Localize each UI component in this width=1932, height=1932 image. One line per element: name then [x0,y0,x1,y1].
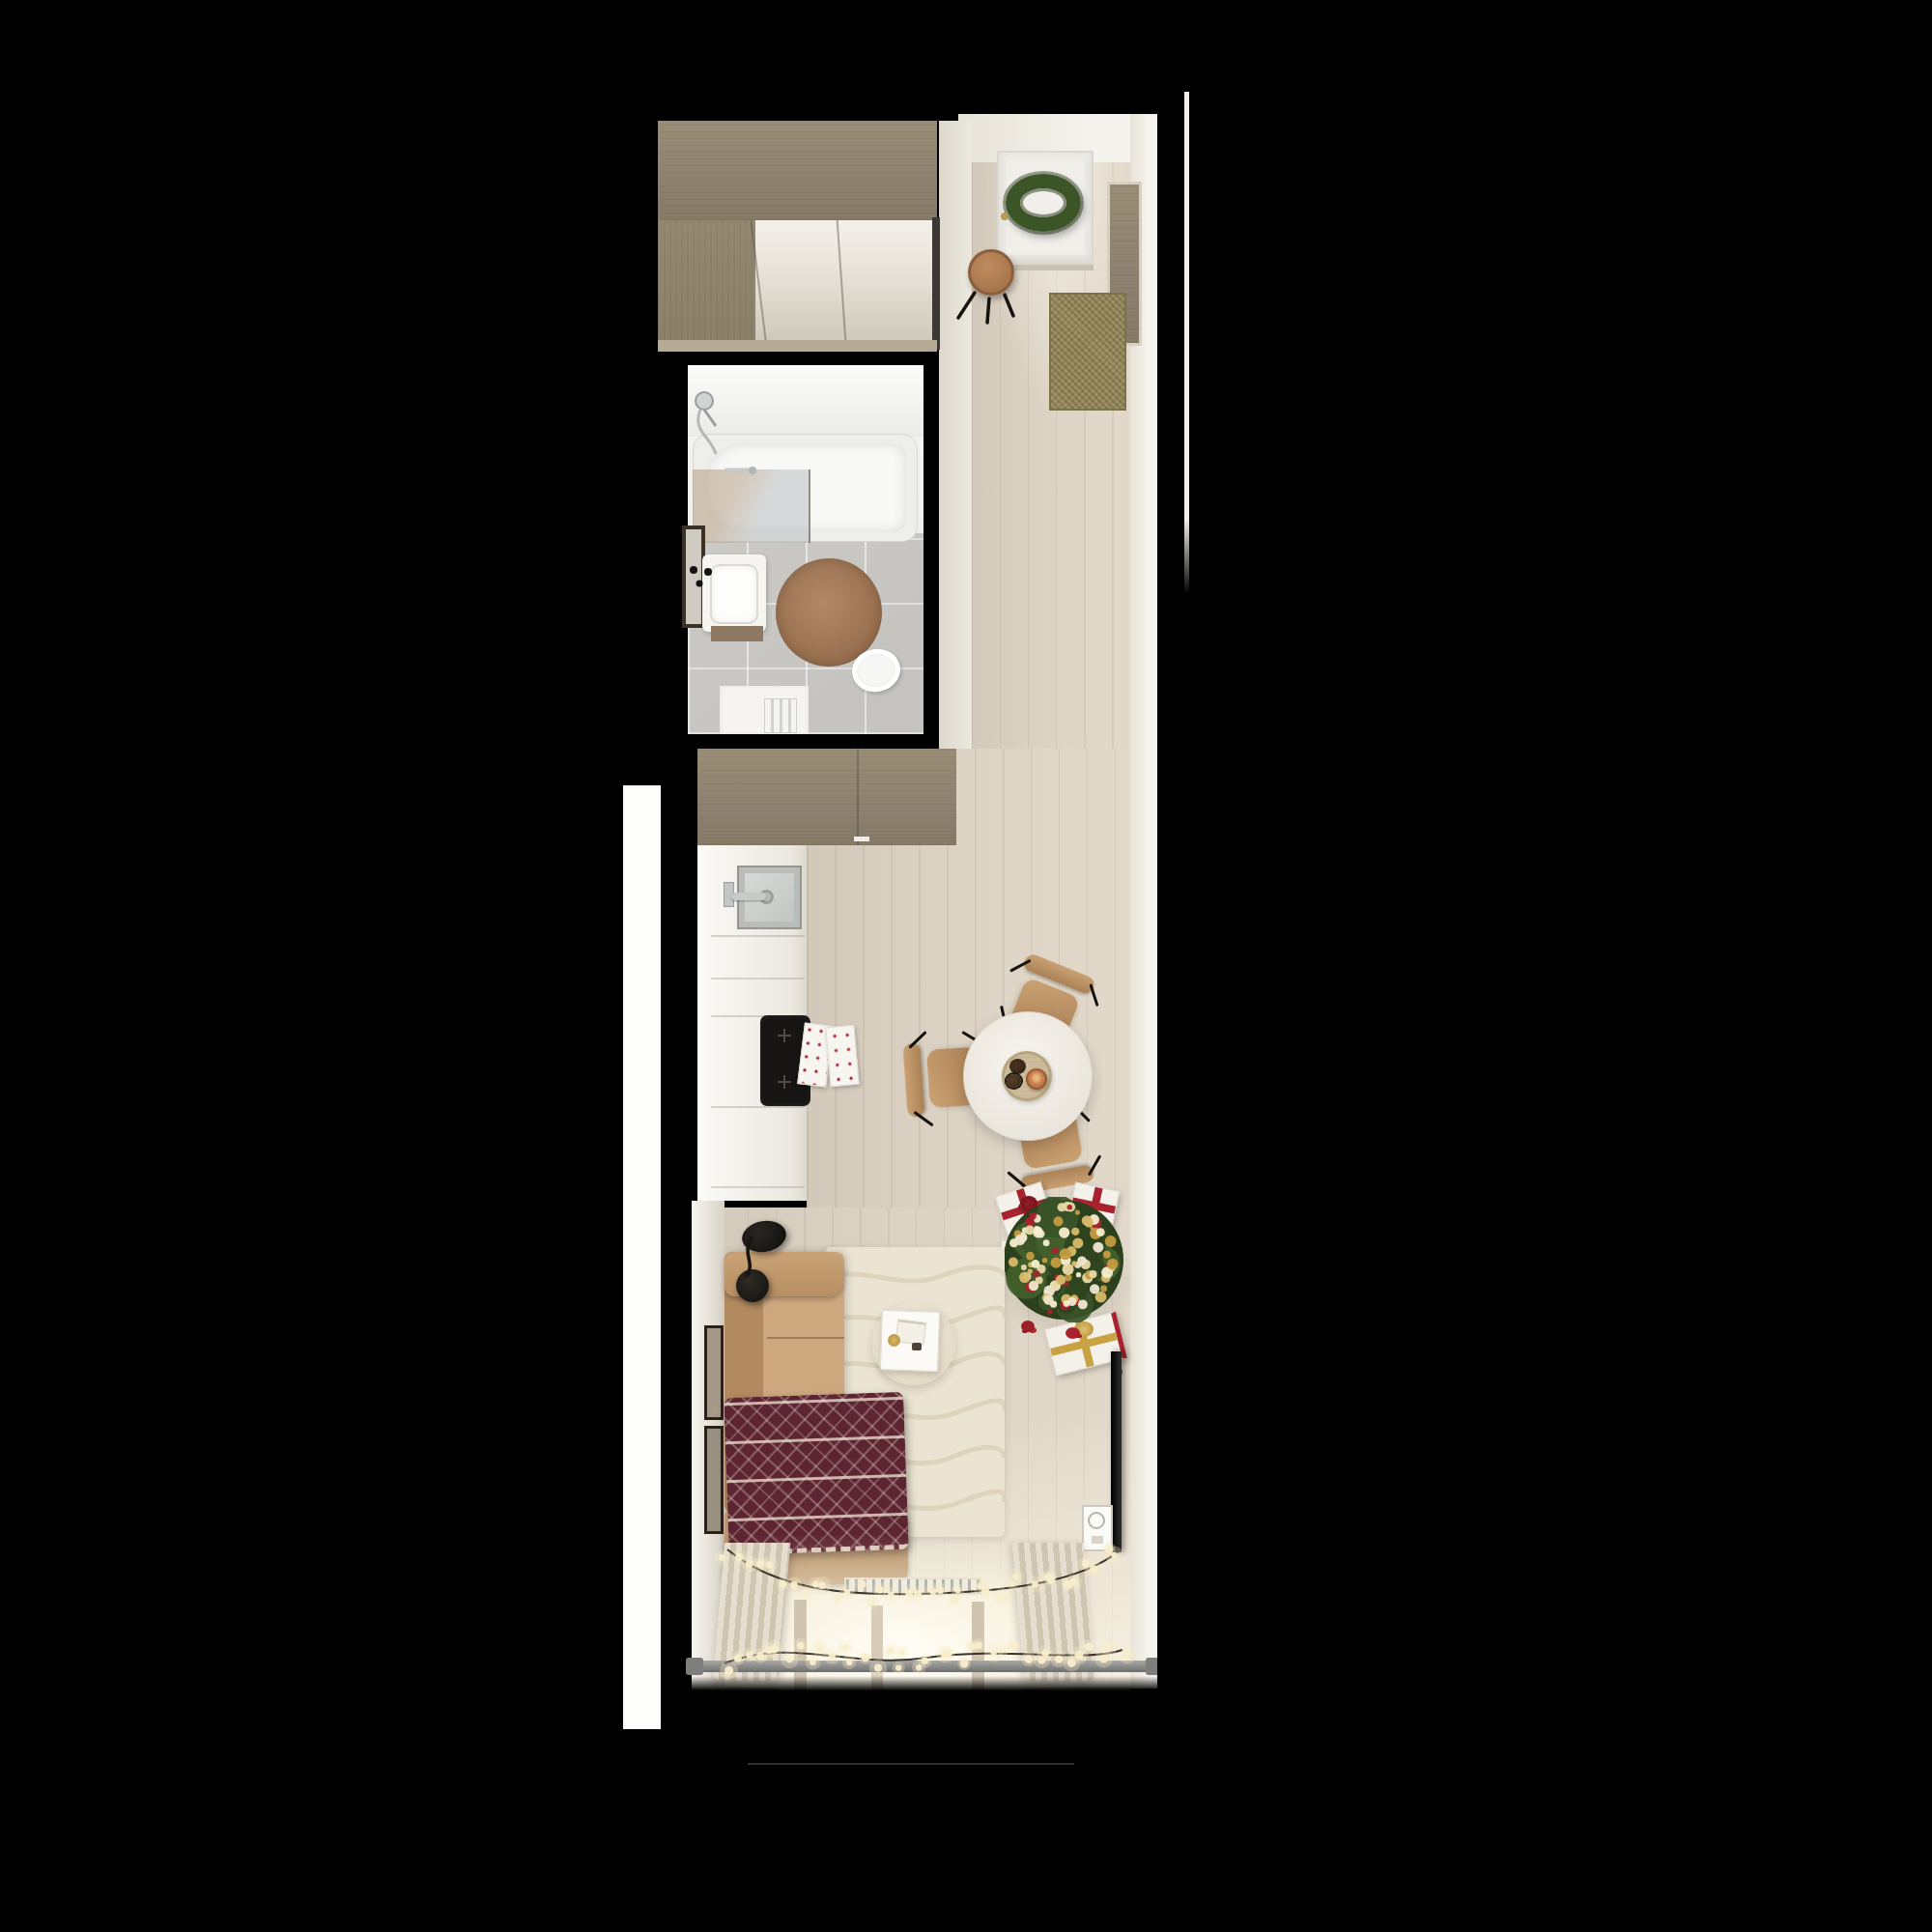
small-dark-item [912,1343,922,1350]
kitchen-upper-cabinets [697,749,956,845]
wardrobe-shadow-edge [932,217,940,350]
exterior-wall-line-top-right [1184,92,1189,594]
bath-glass-screen [693,469,810,543]
christmas-wreath [1006,174,1081,232]
round-stool [968,249,1014,296]
cinnamon-bun [1026,1068,1047,1090]
wall-frame [704,1325,724,1420]
sofa-seam [767,1337,844,1339]
cabinet-handle [854,837,869,841]
wall-frame [704,1426,724,1534]
christmas-blanket [724,1392,909,1555]
wardrobe-sliding-doors [755,220,932,340]
rod-end-cap [1146,1658,1157,1675]
counter-seam [711,978,805,980]
hall-left-wall [939,121,972,749]
christmas-tree [1001,1197,1126,1322]
right-wall [1130,114,1157,1689]
counter-seam [711,1186,805,1188]
radiator [844,1577,981,1595]
berry-cluster [1065,1327,1080,1339]
socket-dial [1088,1512,1105,1529]
curtain-rod [694,1661,1155,1672]
gold-cup [888,1334,900,1347]
cabinet-seam [857,749,859,845]
door-handle [1001,213,1009,220]
tea-towel [825,1025,859,1087]
counter-seam [711,1106,805,1108]
bathroom-top-wall [688,365,923,437]
burner-mark [783,1075,785,1089]
vanity-front [711,626,763,641]
rod-end-cap [686,1658,703,1675]
wardrobe-side-panel [658,220,755,350]
burner-mark [783,1029,785,1042]
bottom-fade [686,1676,1157,1692]
counter-seam [711,935,805,937]
towel-radiator [764,698,797,733]
cookie-plate [1007,1074,1021,1088]
exterior-wall-strip-left [623,785,661,1729]
washbasin-bowl [710,564,758,624]
wardrobe-top-panel [658,121,937,220]
floor-lamp-shade-lower [736,1269,769,1302]
kitchen-faucet-arm [731,893,766,900]
cookie-plate [1009,1059,1026,1074]
window-bay [686,1536,1157,1692]
wardrobe-base-strip [658,340,937,352]
doormat [1049,293,1126,411]
floorplan-render [0,0,1932,1932]
door-seam [837,220,847,340]
